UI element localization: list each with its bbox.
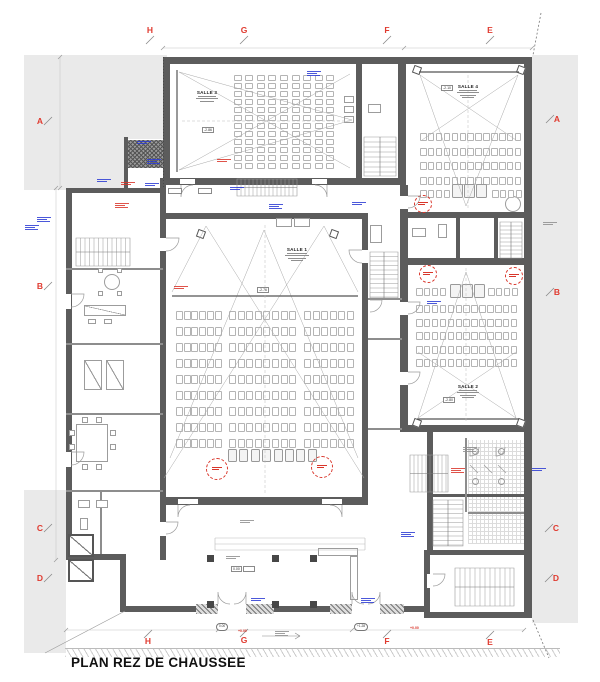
seat [176,359,183,368]
gray-annotation [275,631,291,639]
seat [303,83,311,89]
seat [511,346,518,354]
seat [215,327,222,336]
seat [280,99,288,105]
door-arc [433,574,445,586]
seat [263,359,270,368]
seat [257,99,265,105]
furniture [88,319,96,324]
partition-wall [368,298,402,300]
seat [292,91,300,97]
seat [199,375,206,384]
seat [207,391,214,400]
stair-outline [433,500,463,546]
seat [440,332,447,340]
seat [432,319,439,327]
grid-letter-left-b: B [37,282,43,291]
red-annotation [115,203,131,211]
seat [304,423,311,432]
seat [257,139,265,145]
seat [292,107,300,113]
seat [338,327,345,336]
grid-letter-bottom-h: H [145,637,151,646]
blue-annotation [401,532,417,540]
seat [303,123,311,129]
seat [495,332,502,340]
seat [280,91,288,97]
seat [280,155,288,161]
seat [245,163,253,169]
partition-wall [66,343,163,345]
stair-outline [76,238,130,266]
salle1-label: SALLE 1 [285,247,309,261]
lobby-pillar [310,555,317,562]
seat [245,139,253,145]
seat [321,423,328,432]
seat [245,91,253,97]
seat [330,343,337,352]
door-opening [180,179,195,184]
wall-segment [456,218,460,262]
seat [432,359,439,367]
seat [272,423,279,432]
furniture [106,360,124,390]
seat [239,449,248,462]
seat [503,319,510,327]
seat [474,284,485,298]
door-arc [315,185,327,197]
seat [255,311,262,320]
grid-tick [44,282,52,290]
seat [338,391,345,400]
seat [321,391,328,400]
seat [476,184,487,198]
seat [289,407,296,416]
seat [234,163,242,169]
seat [432,346,439,354]
speaker-icon [329,229,339,239]
seat [303,163,311,169]
seat [268,115,276,121]
seat [234,83,242,89]
furniture [368,104,381,113]
door-arc [166,238,179,251]
seat [229,423,236,432]
seat [303,99,311,105]
seat [272,439,279,448]
seat [245,107,253,113]
seat [475,162,482,170]
exterior-mass [532,55,578,623]
seat [456,346,463,354]
seat [238,311,245,320]
seat [268,75,276,81]
seat [436,148,443,156]
door-opening [322,499,342,504]
seat [444,162,451,170]
seat [483,133,490,141]
seat [199,391,206,400]
furniture [344,106,354,113]
seat [229,439,236,448]
wall-segment [427,432,433,552]
grid-letter-top-f: F [384,26,389,35]
speaker-icon [412,65,422,75]
door-arc [71,294,84,307]
salle2-level-box: -2.80 [443,397,455,403]
seat [428,148,435,156]
speaker-icon [196,229,206,239]
seat [280,163,288,169]
seat [257,163,265,169]
furniture [350,556,358,600]
seat [263,423,270,432]
dimension-tick [530,46,534,50]
seat [234,115,242,121]
seat [330,311,337,320]
seat [292,163,300,169]
door-opening [400,196,408,209]
seat [246,359,253,368]
seat [207,311,214,320]
seat [479,319,486,327]
dimension-tick [402,46,406,50]
seat [448,319,455,327]
seat [315,147,323,153]
seat [292,147,300,153]
seat [257,107,265,113]
seat [479,305,486,313]
level-box-small-1 [168,188,182,194]
salle3-name: SALLE 3 [196,90,218,95]
seat [207,327,214,336]
seat [234,99,242,105]
seat [245,155,253,161]
blue-annotation [251,598,267,606]
blue-annotation [427,301,443,309]
exterior-mass [24,490,66,653]
seat [511,359,518,367]
seat [234,91,242,97]
wall-segment [160,213,166,505]
seat [488,288,495,296]
seat [229,407,236,416]
seat [246,311,253,320]
grid-letter-right-a: A [554,115,560,124]
seat [416,319,423,327]
seat [479,359,486,367]
furniture [82,464,88,470]
seat [326,107,334,113]
furniture [344,116,354,123]
seat [440,288,447,296]
seat [245,83,253,89]
seat [255,327,262,336]
seat [503,346,510,354]
seat [255,423,262,432]
seat [207,343,214,352]
partition-wall [368,428,402,430]
seat [416,359,423,367]
seat [251,449,260,462]
capacity-text [423,272,433,277]
seat [263,407,270,416]
seat [338,375,345,384]
seat [315,91,323,97]
seat [321,343,328,352]
furniture [117,291,122,296]
seat [234,139,242,145]
seat [416,332,423,340]
seat [255,343,262,352]
door-opening [160,238,166,251]
seat [199,423,206,432]
blue-annotation [37,217,53,225]
seat [313,391,320,400]
seat [471,346,478,354]
partition-wall [66,268,163,270]
seat [315,139,323,145]
capacity-text [418,202,428,207]
wall-segment [494,218,498,262]
seat [463,319,470,327]
seat [255,375,262,384]
seat [326,147,334,153]
blue-annotation [352,202,368,210]
seat [416,305,423,313]
seat [460,162,467,170]
seat [436,162,443,170]
seat [456,319,463,327]
stage-equipment-box [276,218,292,227]
blue-annotation [97,179,113,187]
seat [191,359,198,368]
seat [184,407,191,416]
seat [347,375,354,384]
seat [347,439,354,448]
seat [191,391,198,400]
seat [347,423,354,432]
column-circle [505,196,521,212]
door-opening [427,574,433,588]
seat [313,359,320,368]
seat [303,115,311,121]
seat [424,346,431,354]
seat [176,423,183,432]
seat [347,327,354,336]
door-arc [178,505,190,517]
seat [263,391,270,400]
seat [272,375,279,384]
seat [238,391,245,400]
seat [450,284,461,298]
seat [460,133,467,141]
seat [326,131,334,137]
seat [507,177,514,185]
seat [207,359,214,368]
furniture [117,268,122,273]
grid-letter-right-c: C [553,524,559,533]
seat [503,359,510,367]
salle4-name: SALLE 4 [457,84,479,89]
furniture [69,430,75,436]
seat [176,439,183,448]
seat [228,449,237,462]
seat [245,131,253,137]
seat [448,305,455,313]
seat [304,343,311,352]
seat [238,343,245,352]
seat [444,190,451,198]
seat [495,305,502,313]
lobby-pillar [207,601,214,608]
seat [176,327,183,336]
seat [207,439,214,448]
furniture [78,500,90,508]
seat [268,163,276,169]
seat [464,184,475,198]
seat [280,131,288,137]
door-arc [370,300,382,312]
seat [280,139,288,145]
grid-letter-right-b: B [554,288,560,297]
grid-letter-left-d: D [37,574,43,583]
seat [424,288,431,296]
salle3-level-box: -2.86 [202,127,214,133]
seat [263,327,270,336]
door-opening [160,522,166,536]
seat [229,327,236,336]
seat [304,375,311,384]
seat [463,346,470,354]
seat [292,99,300,105]
seat [444,148,451,156]
seat [347,391,354,400]
elevator-shaft [68,559,94,582]
seat [462,284,473,298]
seat [229,343,236,352]
seat [471,359,478,367]
seat [238,375,245,384]
furniture [80,518,88,530]
seat [268,83,276,89]
seat [191,327,198,336]
capacity-text [317,465,327,470]
seat [304,359,311,368]
seat [471,319,478,327]
seat [456,332,463,340]
seat [511,332,518,340]
salle3-label: SALLE 3 [196,90,218,102]
seat [347,407,354,416]
entrance-glazing [380,604,404,614]
seat [255,407,262,416]
salle4-level-box: -2.10 [441,85,453,91]
seat [432,288,439,296]
seat [321,375,328,384]
furniture [344,96,354,103]
seat [313,439,320,448]
furniture [96,417,102,423]
gray-annotation [240,520,256,528]
level-box-small-2 [198,188,212,194]
seat [215,423,222,432]
seat [268,139,276,145]
grid-letter-top-e: E [487,26,493,35]
blue-annotation [25,225,41,233]
door-opening [400,302,408,315]
seat [515,148,522,156]
seat [257,83,265,89]
seat [199,327,206,336]
seat [507,148,514,156]
seat [281,375,288,384]
seat [292,155,300,161]
seat [326,83,334,89]
grid-letter-bottom-g: G [241,636,248,645]
door-arc [181,185,193,197]
seat [199,407,206,416]
seat [440,319,447,327]
furniture [412,228,426,237]
seat [234,75,242,81]
wall-segment [427,494,524,497]
seat [263,343,270,352]
door-arc [349,250,362,263]
seat [313,375,320,384]
seat [512,288,519,296]
seat [184,375,191,384]
seat [191,423,198,432]
grid-letter-right-d: D [553,574,559,583]
red-annotation [217,159,233,167]
partition-wall [368,338,402,340]
seat [176,343,183,352]
wall-segment [163,57,404,64]
seat [272,327,279,336]
furniture [318,548,358,556]
seat [257,91,265,97]
boundary-dashed [533,13,541,55]
furniture [110,444,116,450]
seat [444,177,451,185]
seat [176,311,183,320]
seat [207,423,214,432]
seat [191,343,198,352]
furniture [104,319,112,324]
furniture [84,305,126,316]
seat [499,177,506,185]
door-arc [166,522,178,534]
seat [292,123,300,129]
grid-tick [383,36,391,44]
seat [303,107,311,113]
seat [326,115,334,121]
red-annotation [121,182,137,190]
seat [487,332,494,340]
stage-equipment-box [294,218,310,227]
seat [215,375,222,384]
seat [246,327,253,336]
seat [262,449,271,462]
seat [511,305,518,313]
seat [515,177,522,185]
blue-annotation [361,598,377,606]
seat [448,359,455,367]
entry-level-left: +0.00 [238,630,247,634]
wall-segment [160,213,368,219]
seat [289,391,296,400]
